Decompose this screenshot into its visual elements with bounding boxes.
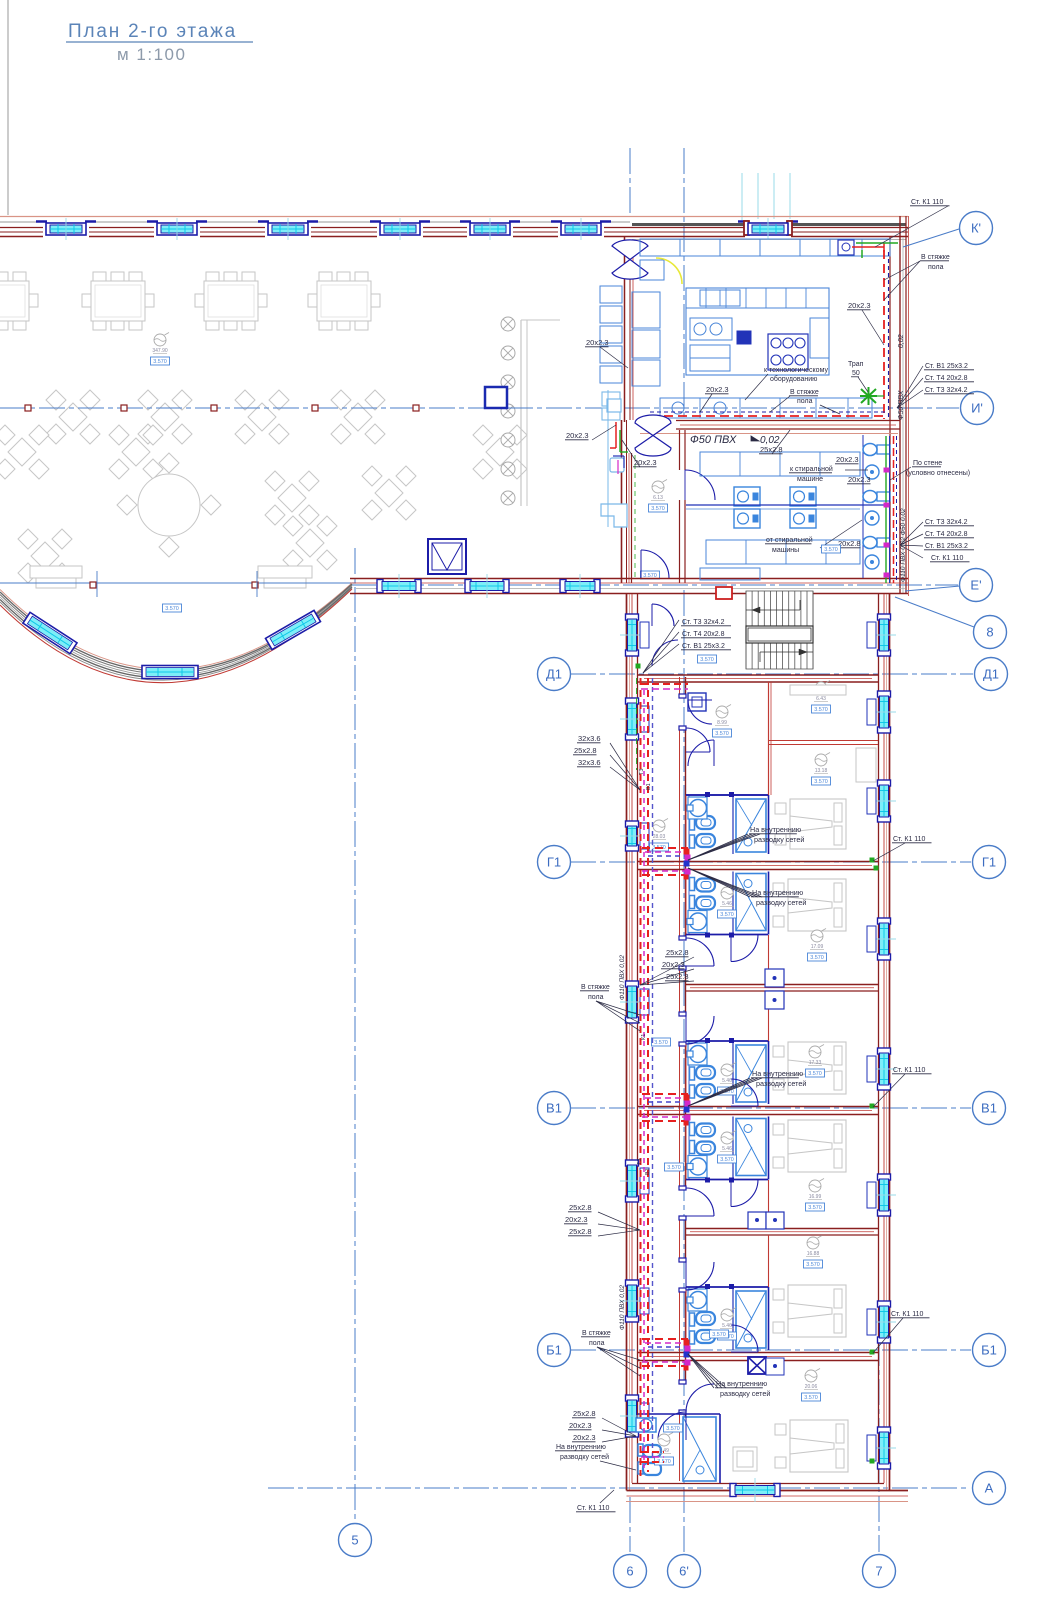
svg-text:машине: машине — [797, 476, 823, 483]
svg-text:Ст. К1 110: Ст. К1 110 — [891, 1311, 924, 1318]
svg-text:Д1: Д1 — [983, 667, 999, 682]
svg-text:3.570: 3.570 — [712, 1332, 726, 1338]
svg-text:17.33: 17.33 — [809, 1060, 822, 1066]
svg-text:разводку сетей: разводку сетей — [560, 1453, 609, 1461]
svg-text:Ст. Т3 32х4.2: Ст. Т3 32х4.2 — [682, 619, 725, 626]
svg-text:(условно отнесены): (условно отнесены) — [906, 470, 970, 477]
svg-text:25х2.8: 25х2.8 — [760, 445, 783, 454]
svg-text:Ст. В1 25х3.2: Ст. В1 25х3.2 — [925, 543, 968, 550]
svg-text:План 2-го этажа: План 2-го этажа — [68, 21, 237, 42]
svg-text:20х2.3: 20х2.3 — [586, 338, 609, 347]
svg-text:Ст. В1 25х3.2: Ст. В1 25х3.2 — [682, 643, 725, 650]
svg-text:Ст. В1 25х3.2: Ст. В1 25х3.2 — [925, 363, 968, 370]
svg-text:3.570: 3.570 — [808, 1205, 822, 1211]
svg-text:На внутреннию: На внутреннию — [752, 888, 804, 897]
svg-text:пола: пола — [588, 994, 604, 1001]
svg-text:В1: В1 — [981, 1101, 997, 1116]
svg-text:5.46: 5.46 — [722, 901, 732, 907]
svg-text:25х2.8: 25х2.8 — [569, 1227, 592, 1236]
svg-text:Ф110 ПВХ 0,02: Ф110 ПВХ 0,02 — [619, 1285, 626, 1330]
svg-text:оборудованию: оборудованию — [770, 375, 817, 383]
svg-text:Г1: Г1 — [547, 855, 561, 870]
svg-text:3.570: 3.570 — [720, 1157, 734, 1163]
svg-text:В1: В1 — [546, 1101, 562, 1116]
svg-text:В стяжке: В стяжке — [790, 389, 819, 396]
svg-text:Ст. Т3 32х4.2: Ст. Т3 32х4.2 — [925, 387, 968, 394]
svg-text:пола: пола — [589, 1340, 605, 1347]
svg-text:машины: машины — [772, 547, 799, 554]
svg-text:На внутреннию: На внутреннию — [750, 825, 802, 834]
svg-text:Ст. Т4 20х2.8: Ст. Т4 20х2.8 — [925, 531, 968, 538]
svg-text:3.570: 3.570 — [810, 955, 824, 961]
svg-text:20х2.3: 20х2.3 — [566, 431, 589, 440]
svg-text:м 1:100: м 1:100 — [117, 45, 186, 64]
svg-text:3.570: 3.570 — [667, 1165, 681, 1171]
svg-text:Ст. К1 110: Ст. К1 110 — [931, 555, 964, 562]
svg-text:6.13: 6.13 — [653, 495, 663, 501]
svg-text:32х3.6: 32х3.6 — [578, 734, 601, 743]
svg-text:к стиральной: к стиральной — [790, 465, 833, 473]
svg-text:25х2.8: 25х2.8 — [573, 1409, 596, 1418]
svg-text:3.570: 3.570 — [165, 606, 179, 612]
svg-text:Ст. К1 110: Ст. К1 110 — [893, 1067, 926, 1074]
svg-text:32х3.6: 32х3.6 — [578, 758, 601, 767]
svg-text:16.99: 16.99 — [809, 1194, 822, 1200]
svg-text:В1: В1 — [645, 1168, 651, 1175]
svg-text:0,02: 0,02 — [898, 334, 905, 348]
svg-text:20х2.3: 20х2.3 — [565, 1215, 588, 1224]
svg-text:Д1: Д1 — [546, 667, 562, 682]
svg-text:347.90: 347.90 — [152, 348, 168, 354]
svg-text:5: 5 — [351, 1533, 358, 1548]
svg-text:25х2.8: 25х2.8 — [569, 1203, 592, 1212]
svg-text:25х2.8: 25х2.8 — [574, 746, 597, 755]
svg-text:Г1: Г1 — [982, 855, 996, 870]
svg-text:Б1: Б1 — [546, 1343, 562, 1358]
svg-text:3.570: 3.570 — [814, 779, 828, 785]
svg-text:3.570: 3.570 — [804, 1395, 818, 1401]
svg-text:3.570: 3.570 — [666, 1426, 680, 1432]
svg-text:В стяжке: В стяжке — [921, 254, 950, 261]
svg-text:от стиральной: от стиральной — [766, 536, 813, 544]
svg-text:7: 7 — [875, 1564, 882, 1579]
svg-text:20х2.3: 20х2.3 — [706, 385, 729, 394]
svg-text:3.570: 3.570 — [651, 506, 665, 512]
svg-text:Ст. Т4 20х2.8: Ст. Т4 20х2.8 — [682, 631, 725, 638]
svg-text:3.570: 3.570 — [700, 657, 714, 663]
svg-text:Ст. Т4 20х2.8: Ст. Т4 20х2.8 — [925, 375, 968, 382]
svg-text:50: 50 — [852, 370, 860, 377]
svg-text:3.570: 3.570 — [654, 1040, 668, 1046]
svg-text:разводку сетей: разводку сетей — [720, 1389, 770, 1398]
svg-text:3.570: 3.570 — [806, 1262, 820, 1268]
svg-text:6.43: 6.43 — [816, 696, 826, 702]
svg-text:Ф110 ПВХ 0,02 Ф50 0,02: Ф110 ПВХ 0,02 Ф50 0,02 — [900, 508, 907, 582]
svg-text:3.570: 3.570 — [808, 1071, 822, 1077]
svg-text:разводку сетей: разводку сетей — [756, 1079, 806, 1088]
svg-text:Ст. Т3 32х4.2: Ст. Т3 32х4.2 — [925, 519, 968, 526]
svg-text:разводку сетей: разводку сетей — [756, 898, 806, 907]
svg-text:В стяжке: В стяжке — [581, 984, 610, 991]
svg-text:Трап: Трап — [848, 361, 864, 368]
svg-text:20х2.3: 20х2.3 — [848, 301, 871, 310]
svg-text:6: 6 — [626, 1564, 633, 1579]
svg-text:К': К' — [971, 221, 981, 236]
svg-text:По стене: По стене — [913, 460, 942, 467]
svg-text:3.570: 3.570 — [720, 912, 734, 918]
svg-text:3.570: 3.570 — [814, 707, 828, 713]
svg-text:8: 8 — [986, 625, 993, 640]
svg-text:16.88: 16.88 — [807, 1251, 820, 1257]
svg-text:На внутреннию: На внутреннию — [716, 1379, 768, 1388]
svg-text:пола: пола — [797, 398, 813, 405]
svg-text:5.49: 5.49 — [659, 1448, 669, 1454]
svg-text:Ф110 ПВХ 0,02: Ф110 ПВХ 0,02 — [619, 955, 626, 1000]
svg-text:Ст. К1 110: Ст. К1 110 — [577, 1505, 610, 1512]
svg-text:К1: К1 — [641, 1034, 647, 1040]
svg-text:Ст. К1 110: Ст. К1 110 — [893, 836, 926, 843]
svg-text:8.99: 8.99 — [717, 720, 727, 726]
svg-text:3.570: 3.570 — [715, 731, 729, 737]
svg-text:А: А — [985, 1481, 994, 1496]
svg-text:Е': Е' — [970, 578, 981, 593]
svg-text:Ф50 ПВХ: Ф50 ПВХ — [690, 434, 737, 446]
svg-text:20.06: 20.06 — [805, 1384, 818, 1390]
svg-text:20х2.3: 20х2.3 — [836, 455, 859, 464]
svg-text:5.46: 5.46 — [722, 1078, 732, 1084]
svg-text:6': 6' — [679, 1564, 689, 1579]
svg-text:Т3: Т3 — [639, 769, 645, 775]
svg-text:28.03: 28.03 — [653, 834, 666, 840]
svg-text:Т3: Т3 — [637, 1159, 643, 1165]
svg-text:к технологическому: к технологическому — [764, 367, 828, 374]
svg-text:Б1: Б1 — [981, 1343, 997, 1358]
svg-text:20х2.3: 20х2.3 — [848, 475, 871, 484]
svg-text:20х2.3: 20х2.3 — [569, 1421, 592, 1430]
svg-text:3.570: 3.570 — [153, 359, 167, 365]
svg-text:разводку сетей: разводку сетей — [754, 835, 804, 844]
svg-text:5.46: 5.46 — [722, 1323, 732, 1329]
svg-text:3.570: 3.570 — [824, 547, 838, 553]
svg-text:На внутреннию: На внутреннию — [556, 1444, 606, 1451]
svg-text:На внутреннию: На внутреннию — [752, 1069, 804, 1078]
svg-text:25х2.8: 25х2.8 — [666, 948, 689, 957]
svg-text:5.46: 5.46 — [722, 1146, 732, 1152]
svg-text:20х2.8: 20х2.8 — [838, 539, 861, 548]
svg-text:Ф50 ПВХ: Ф50 ПВХ — [898, 390, 905, 420]
svg-text:В1: В1 — [646, 783, 652, 790]
svg-text:И': И' — [971, 401, 983, 416]
svg-text:13.18: 13.18 — [815, 768, 828, 774]
svg-text:17.09: 17.09 — [811, 944, 824, 950]
svg-text:пола: пола — [928, 264, 944, 271]
svg-text:Ст. К1 110: Ст. К1 110 — [911, 199, 944, 206]
svg-text:20х2.3: 20х2.3 — [573, 1433, 596, 1442]
svg-text:В стяжке: В стяжке — [582, 1330, 611, 1337]
